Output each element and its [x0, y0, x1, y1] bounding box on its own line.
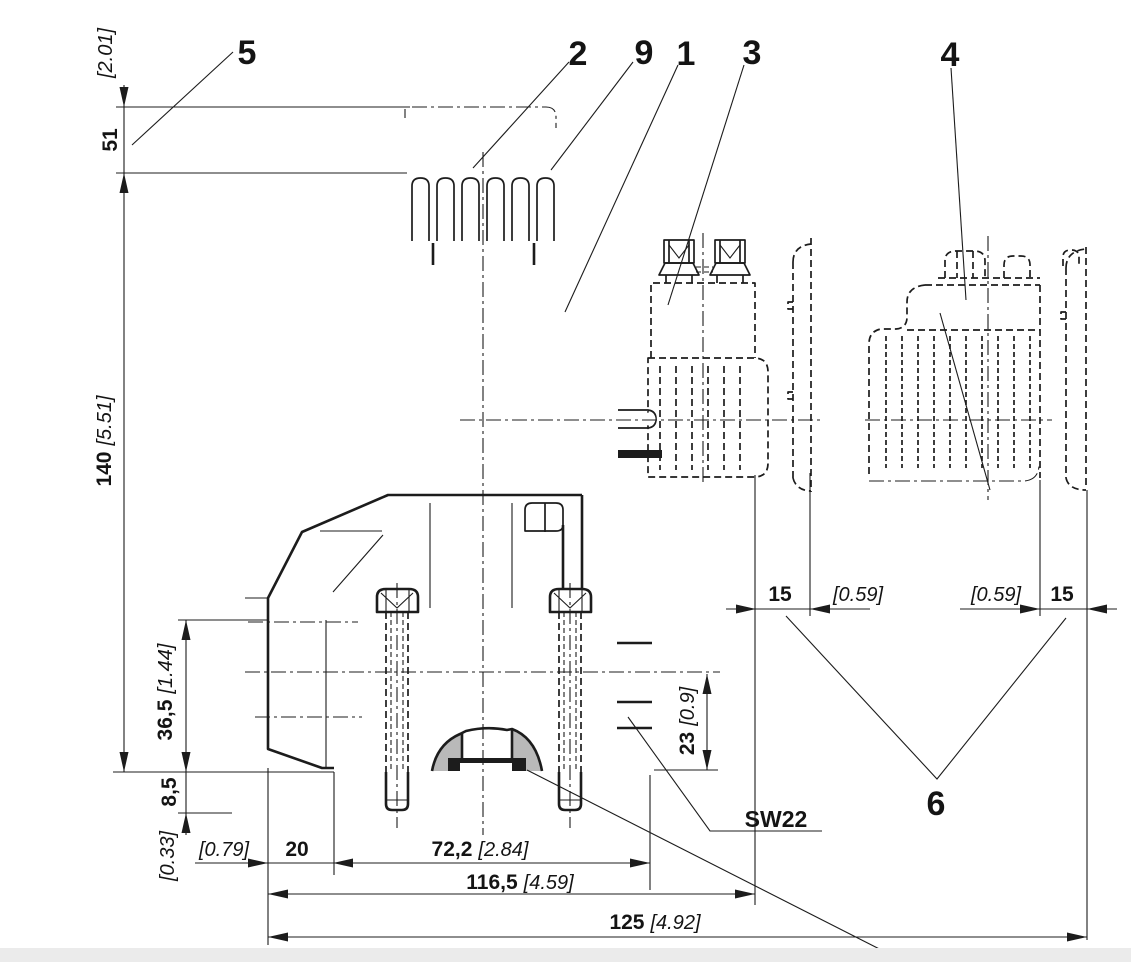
connector-3-side-profile: [788, 238, 811, 492]
coil-connector-block: [553, 359, 662, 487]
callout-9: 9: [635, 34, 654, 72]
connector-4-phantom: [869, 247, 1086, 490]
sw22-text: SW22: [745, 806, 808, 832]
seat-leader: [527, 770, 905, 962]
technical-drawing-page: [2.01] 51 140[5.51] 36,5[1.44] 8,5 [0.33…: [0, 0, 1131, 962]
valve-main-view: [245, 172, 662, 810]
dim-removal-right-inch: [0.59]: [970, 584, 1021, 606]
dim-height: 140[5.51]: [93, 395, 116, 487]
pin-eyelet: [643, 413, 656, 426]
pin-blade: [618, 450, 662, 458]
connector-4-corrugation: [886, 336, 1030, 468]
dim-port-height: 36,5[1.44]: [154, 643, 177, 740]
base-block: [334, 610, 617, 772]
callout-6: 6: [927, 785, 946, 823]
dim-removal-right-mm: 15: [1050, 583, 1074, 606]
callout-1: 1: [677, 35, 696, 73]
wrench-size-label: SW22: [628, 717, 822, 832]
dim-overall-width: 125[4.92]: [609, 911, 701, 934]
connector-3-phantom: [648, 238, 811, 492]
hex-fitting: [617, 612, 652, 770]
item-6-leader: [786, 616, 1066, 779]
dim-removal-left-mm: 15: [768, 583, 792, 606]
callout-2: 2: [569, 35, 588, 73]
dim-raise-mm: 51: [99, 128, 122, 152]
page-footer-strip: [0, 948, 1131, 962]
dim-stud-mm: 8,5: [158, 777, 181, 807]
dim-offset-inch: [0.79]: [198, 839, 249, 861]
dim-raise-inch: [2.01]: [95, 28, 117, 79]
dim-port-axis: 23[0.9]: [676, 686, 699, 755]
dim-stud-inch: [0.33]: [157, 831, 179, 882]
connector-3-corrugation: [648, 358, 768, 477]
valve-dimension-drawing: [2.01] 51 140[5.51] 36,5[1.44] 8,5 [0.33…: [0, 0, 1131, 962]
callout-5: 5: [238, 34, 257, 72]
dim-bolt-spacing: 72,2[2.84]: [432, 838, 529, 861]
extension-and-dimension-lines: [113, 85, 1117, 945]
dim-removal-left-inch: [0.59]: [832, 584, 883, 606]
dim-width: 116,5[4.59]: [466, 871, 574, 894]
callout-leaders: [132, 52, 1066, 962]
connector-4-side-profile: [1061, 247, 1086, 490]
raised-knob-phantom-line: [412, 107, 556, 128]
dim-offset-mm: 20: [285, 838, 308, 861]
callout-4: 4: [941, 36, 960, 74]
connector-3-screws: [659, 240, 750, 283]
callout-3: 3: [743, 34, 762, 72]
